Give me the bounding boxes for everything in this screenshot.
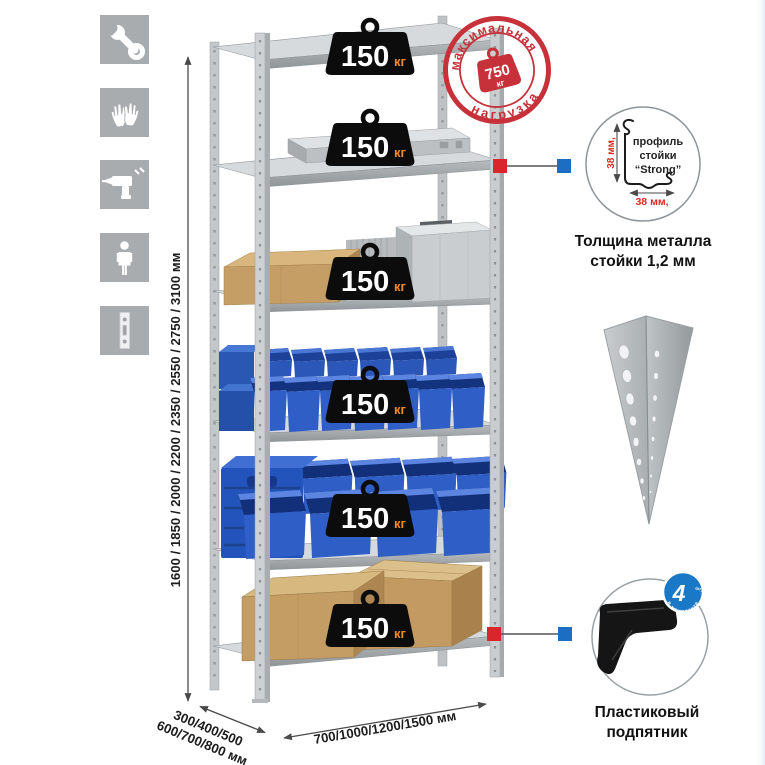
load-unit: кг bbox=[394, 402, 407, 417]
drill-icon bbox=[100, 160, 149, 209]
profile-strip-icon bbox=[100, 306, 149, 355]
height-dimension: 1600 / 1850 / 2000 / 2200 / 2350 / 2550 … bbox=[168, 57, 188, 701]
load-unit: кг bbox=[394, 145, 407, 160]
height-dimension-label: 1600 / 1850 / 2000 / 2200 / 2350 / 2550 … bbox=[168, 253, 183, 588]
profile-caption: Толщина металла bbox=[575, 233, 712, 250]
person-icon bbox=[100, 233, 149, 282]
callout-blue-marker bbox=[557, 159, 571, 173]
profile-label: “Strong” bbox=[635, 164, 681, 176]
load-unit: кг bbox=[394, 626, 407, 641]
product-infographic: 1600 / 1850 / 2000 / 2200 / 2350 / 2550 … bbox=[0, 0, 765, 765]
feature-icon-column bbox=[100, 15, 149, 355]
profile-label: профиль bbox=[633, 136, 683, 148]
profile-caption: стойки 1,2 мм bbox=[590, 253, 695, 270]
depth-dimension: 300/400/500 600/700/800 мм bbox=[155, 703, 265, 765]
load-unit: кг bbox=[394, 54, 407, 69]
load-value: 150 bbox=[341, 613, 389, 645]
badge-value: 4 bbox=[672, 580, 686, 606]
gloves-icon bbox=[100, 88, 149, 137]
wrench-icon bbox=[100, 15, 149, 64]
load-value: 150 bbox=[341, 132, 389, 164]
load-unit: кг bbox=[394, 279, 407, 294]
load-badge-2: 150 кг bbox=[326, 111, 415, 166]
profile-label: стойки bbox=[639, 150, 676, 162]
width-dimension: 700/1000/1200/1500 мм bbox=[284, 704, 486, 747]
callout-blue-marker bbox=[558, 627, 572, 641]
page-edge-tint bbox=[755, 0, 765, 765]
load-value: 150 bbox=[341, 503, 389, 535]
callout-red-marker bbox=[487, 627, 501, 641]
quantity-badge: 4 штуки в комплекте bbox=[663, 572, 710, 615]
illustration-canvas: 1600 / 1850 / 2000 / 2200 / 2350 / 2550 … bbox=[0, 0, 765, 765]
rack bbox=[210, 16, 506, 703]
profile-dim-horizontal: 38 мм, bbox=[635, 196, 668, 208]
upright-profile-photo bbox=[604, 316, 693, 524]
load-value: 150 bbox=[341, 41, 389, 73]
foot-caption: Пластиковый bbox=[595, 704, 700, 721]
profile-detail: 38 мм, 38 мм, профиль стойки “Strong” То… bbox=[575, 107, 712, 270]
foot-caption: подпятник bbox=[606, 724, 687, 741]
callout-profile bbox=[493, 159, 571, 173]
load-unit: кг bbox=[394, 516, 407, 531]
callout-foot bbox=[487, 627, 572, 641]
width-dimension-label: 700/1000/1200/1500 мм bbox=[313, 708, 458, 747]
load-value: 150 bbox=[341, 389, 389, 421]
foot-detail: 4 штуки в комплекте Пластиковый подпятни… bbox=[592, 572, 710, 741]
load-value: 150 bbox=[341, 266, 389, 298]
callout-red-marker bbox=[493, 159, 507, 173]
profile-dim-vertical: 38 мм, bbox=[606, 137, 617, 169]
stamp-weight-icon: 750 кг bbox=[471, 44, 522, 94]
